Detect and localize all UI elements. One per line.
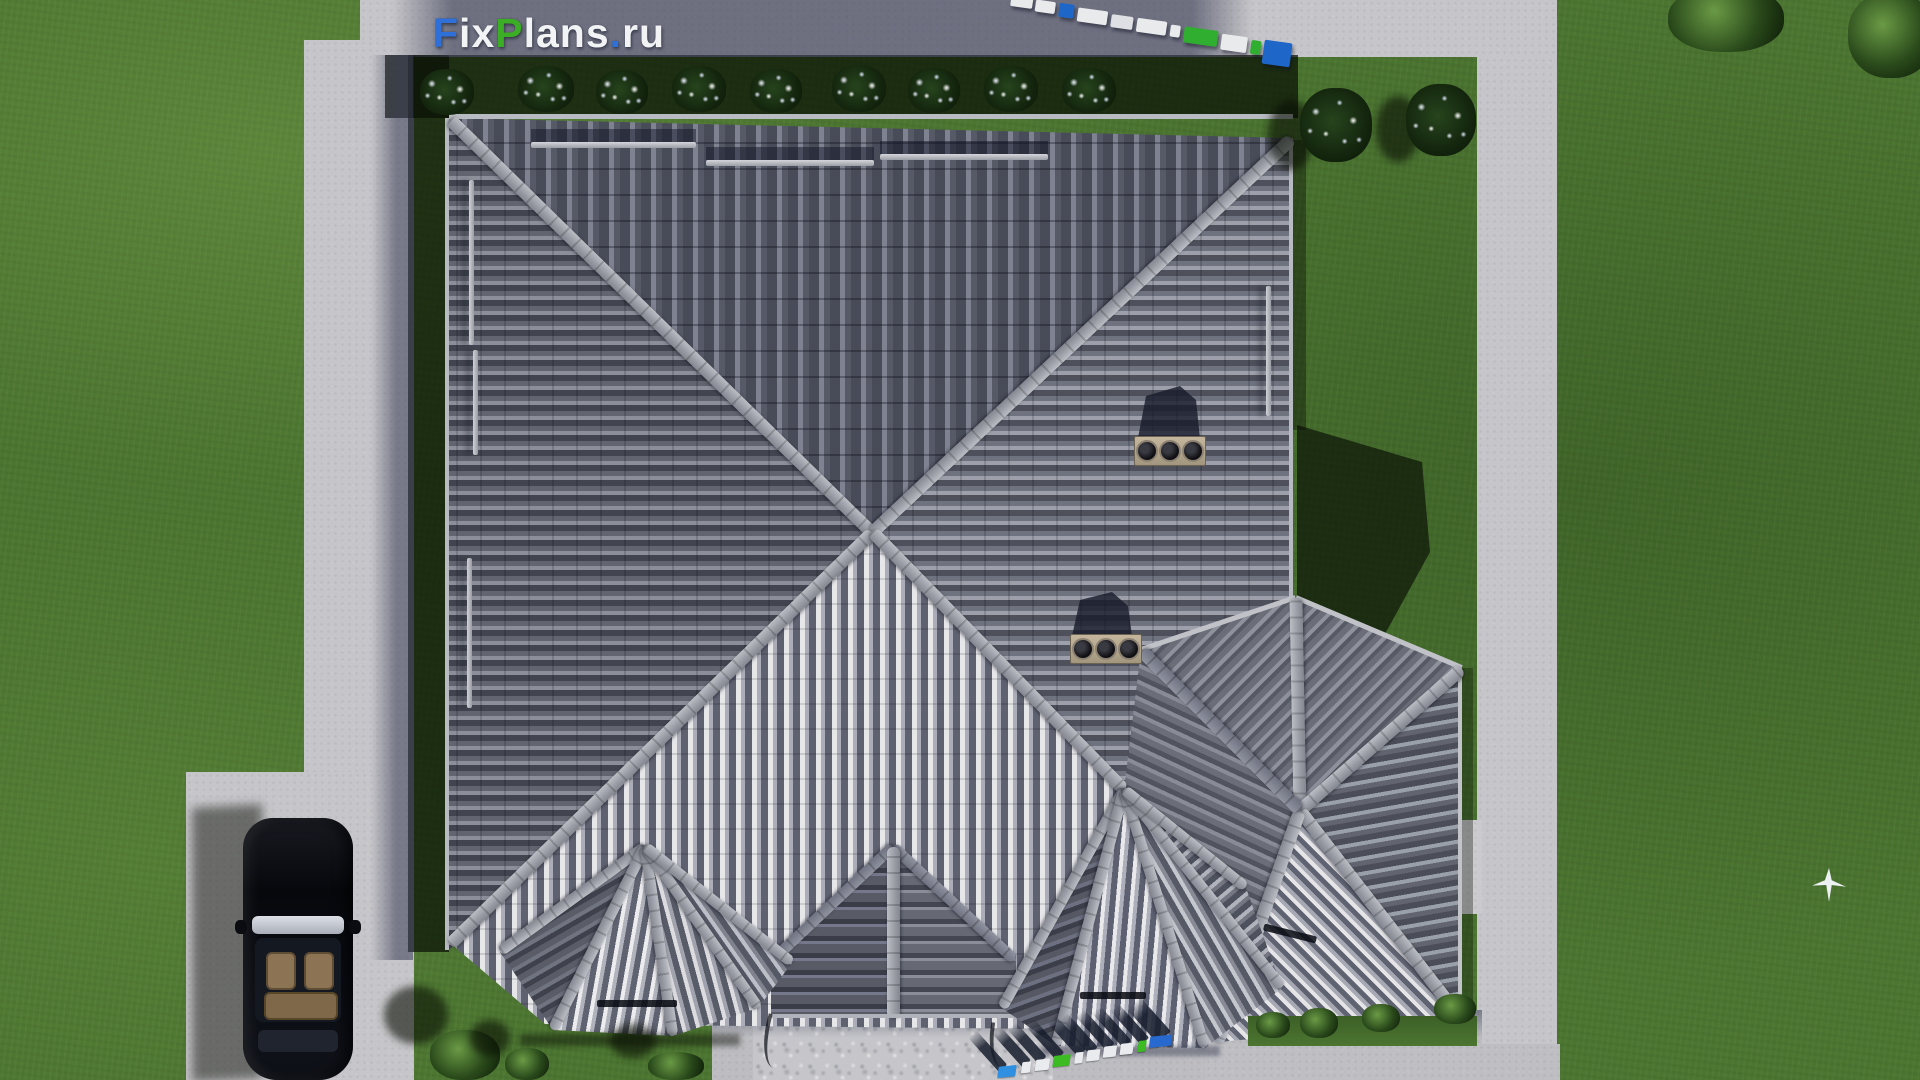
watermark-block — [1035, 0, 1056, 14]
letter-top — [1103, 1045, 1118, 1058]
chimney-pot — [1159, 440, 1181, 462]
logo-segment: F — [433, 10, 459, 56]
wing-trim-e — [1458, 668, 1462, 1020]
letter-top — [1074, 1052, 1084, 1064]
flower-bush — [1062, 68, 1116, 113]
garden-bush — [1434, 994, 1476, 1024]
corner-bush — [1668, 0, 1784, 52]
bush-shadow — [384, 986, 448, 1044]
bush-shadow — [470, 1020, 510, 1056]
chimney-pot — [1182, 440, 1204, 462]
logo-segment: lans — [524, 10, 610, 56]
flower-bush — [908, 68, 960, 113]
car-mirror-right — [349, 920, 361, 934]
watermark-block — [1220, 34, 1248, 53]
letter-top — [1086, 1049, 1101, 1062]
watermark-block — [1169, 24, 1181, 37]
flower-bush — [832, 65, 886, 112]
car-mirror-left — [235, 920, 247, 934]
car-cabin — [255, 938, 341, 1022]
car-seat-front-right — [304, 952, 334, 990]
letter-top — [1035, 1058, 1051, 1071]
chimney-pot — [1136, 440, 1158, 462]
snowguard-top-2 — [706, 160, 874, 166]
watermark-block — [1010, 0, 1033, 9]
shadow-eave-wing — [1462, 668, 1473, 1018]
corner-bush — [1848, 0, 1920, 78]
letter-top — [1021, 1061, 1032, 1073]
chimney-pot — [1072, 638, 1094, 660]
letter-top — [1137, 1040, 1147, 1052]
snowguard-left-1 — [469, 180, 474, 345]
patio-bottom-right — [1205, 1044, 1560, 1080]
snowguard-shadow-3 — [880, 141, 1048, 154]
watermark-block — [1250, 40, 1262, 55]
shadow-eave-right — [1293, 140, 1306, 430]
flower-bush — [672, 66, 726, 112]
chimney-2 — [1070, 634, 1142, 664]
logo-segment: ru — [622, 10, 665, 56]
snowguard-left-3 — [467, 558, 472, 708]
logo-segment: ix — [459, 10, 495, 56]
letter-top — [1052, 1054, 1070, 1067]
watermark-block — [1262, 40, 1293, 68]
snowguard-shadow-1 — [531, 129, 696, 142]
flower-bush — [518, 66, 574, 112]
flower-bush-lawn — [1300, 88, 1372, 162]
snowguard-right — [1266, 286, 1271, 416]
snowguard-top-3 — [880, 154, 1048, 160]
flower-bush — [750, 69, 802, 113]
watermark-block — [1058, 3, 1075, 19]
flower-bush-lawn — [1406, 84, 1476, 156]
flower-bush — [420, 69, 474, 115]
car-seat-front-left — [266, 952, 296, 990]
shadow-path-left — [371, 55, 413, 960]
gable-ridge — [887, 847, 900, 1018]
shadow-grass-left — [408, 55, 449, 952]
lawn-bush — [648, 1052, 704, 1080]
flying-bird — [1812, 868, 1846, 902]
eave-trim-top — [449, 114, 1293, 119]
garden-bush — [1256, 1012, 1290, 1038]
gutter-slot-porch-right — [1080, 992, 1146, 999]
letter-top — [997, 1065, 1016, 1078]
logo-segment: P — [495, 10, 523, 56]
aerial-house-render: FixPlans.ru — [0, 0, 1920, 1080]
logo-segment: . — [610, 10, 622, 56]
garden-bush — [1300, 1008, 1338, 1038]
watermark-block — [1077, 7, 1109, 25]
bush-shadow — [610, 1024, 656, 1058]
flower-bush — [596, 70, 648, 114]
path-right — [1477, 57, 1557, 1052]
car-rear-window — [258, 1030, 338, 1052]
garden-bush — [1362, 1004, 1400, 1032]
snowguard-left-2 — [473, 350, 478, 455]
lawn-bush — [505, 1048, 549, 1080]
watermark-block — [1110, 14, 1134, 30]
snowguard-top-1 — [531, 142, 696, 148]
chimney-pot — [1118, 638, 1140, 660]
eave-trim-left — [445, 118, 449, 950]
car-windshield — [252, 916, 344, 934]
gable-eave — [771, 1014, 1016, 1018]
watermark-block — [1183, 26, 1219, 47]
car — [243, 818, 353, 1080]
chimney-pot — [1095, 638, 1117, 660]
snowguard-shadow-2 — [706, 147, 874, 160]
chimney-1 — [1134, 436, 1206, 466]
flower-bush — [984, 66, 1038, 112]
gutter-slot-porch-left — [597, 1000, 677, 1007]
eave-trim-right — [1289, 138, 1293, 658]
car-seat-rear — [264, 992, 338, 1020]
watermark-block — [1136, 18, 1168, 36]
fixplans-logo: FixPlans.ru — [433, 10, 665, 57]
letter-top — [1119, 1043, 1134, 1056]
letter-top — [1149, 1034, 1172, 1048]
